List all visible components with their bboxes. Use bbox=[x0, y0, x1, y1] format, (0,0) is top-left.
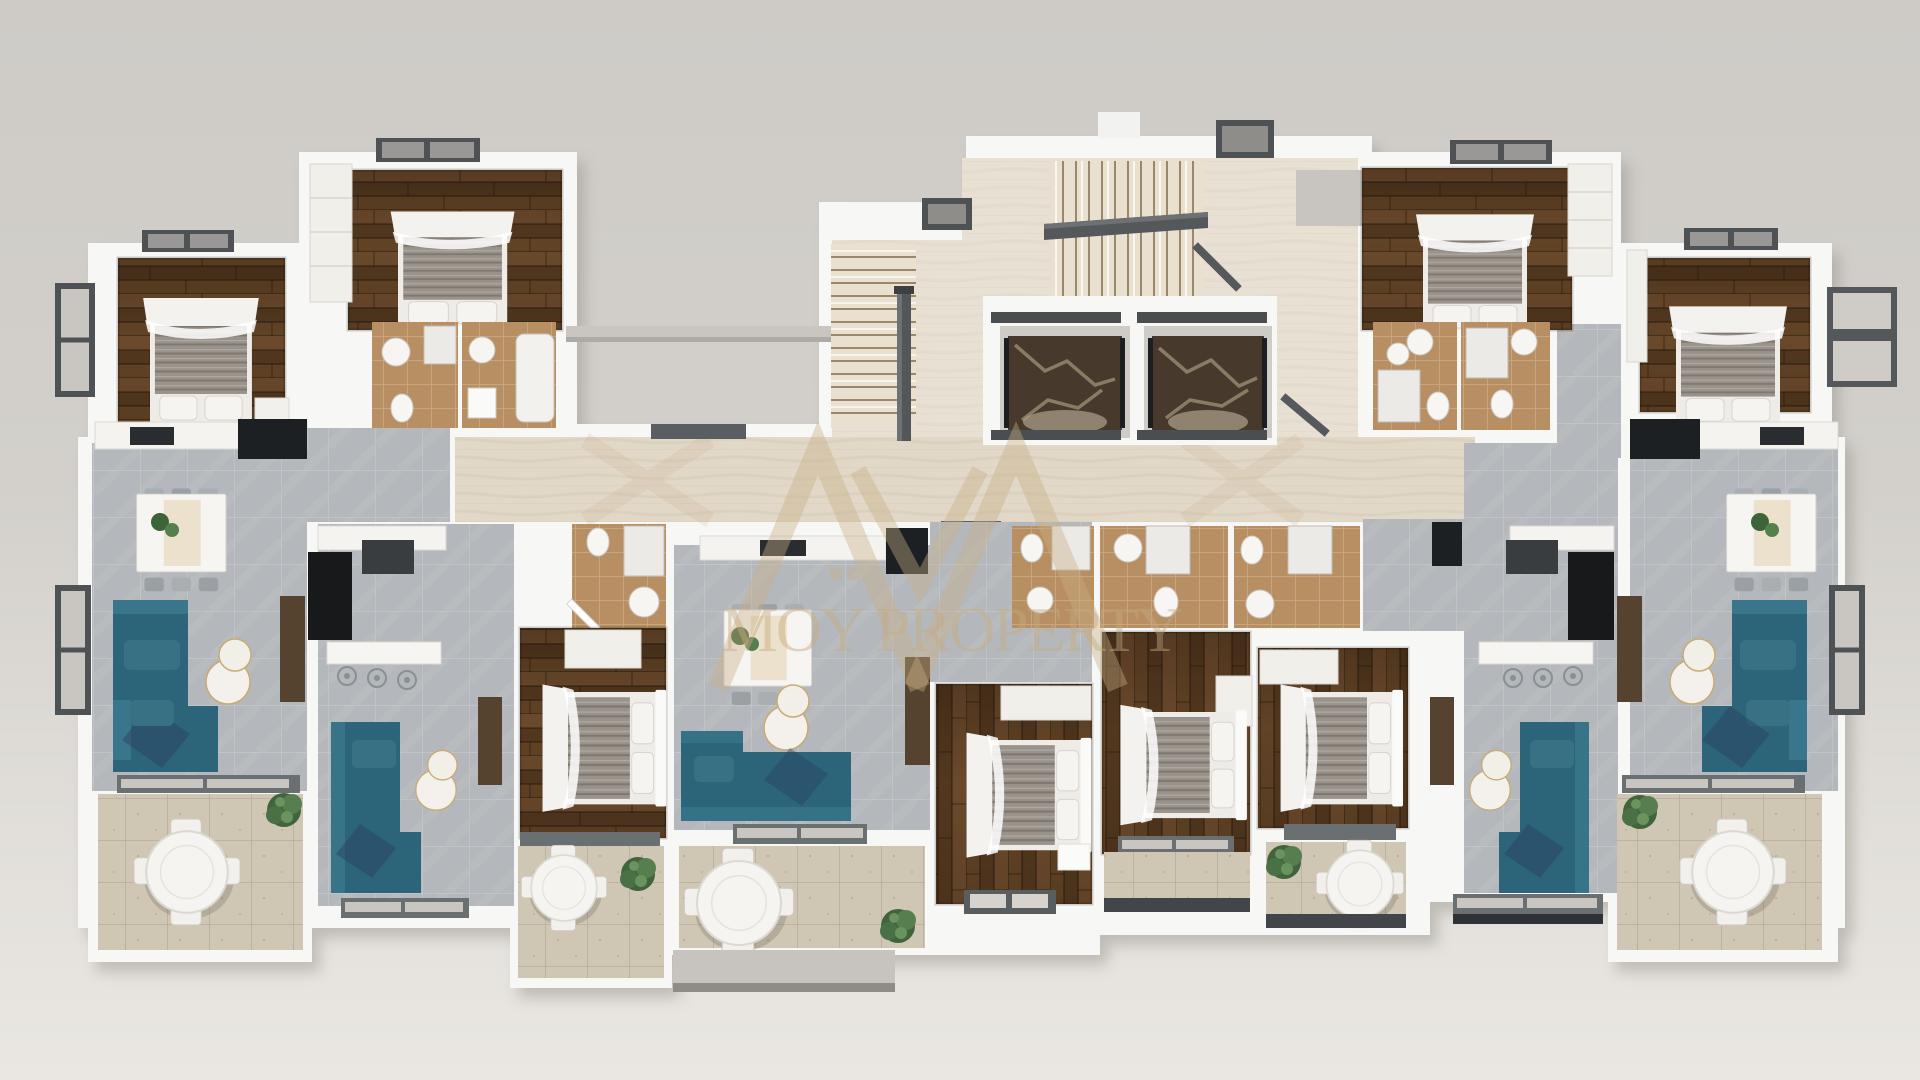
svg-text:MOY PROPERTY: MOY PROPERTY bbox=[721, 594, 1187, 665]
